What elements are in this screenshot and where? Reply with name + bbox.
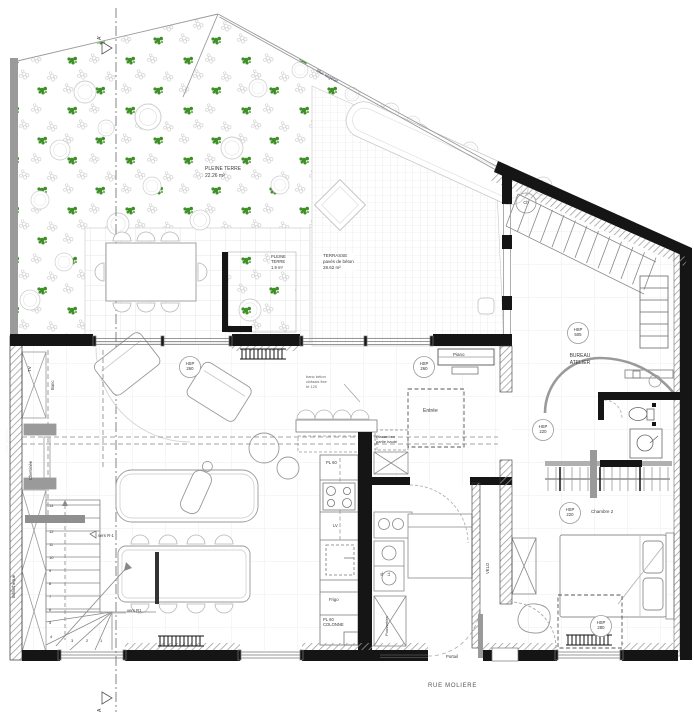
label-pl60: PL 60 bbox=[326, 460, 337, 465]
hsp-badge-chambre: HSP220 bbox=[555, 508, 585, 518]
label-placard: Placard enpartie haute bbox=[376, 434, 397, 444]
hsp-badge-hall: HSP260 bbox=[409, 362, 439, 372]
label-vers-r1: vers R1 bbox=[127, 608, 141, 613]
label-mur-vegetal-left: Mur végétal bbox=[4, 428, 10, 452]
label-ch: Ch bbox=[511, 200, 541, 205]
hsp-badge-bureau: HSP505 bbox=[563, 328, 593, 338]
section-arrow-bottom bbox=[102, 692, 112, 704]
section-marker-top-label: A' bbox=[97, 36, 104, 40]
toilet bbox=[629, 408, 647, 421]
piano-bench bbox=[452, 367, 478, 374]
label-entree: Entrée bbox=[423, 408, 438, 415]
label-seche-linge: SL bbox=[380, 572, 385, 576]
label-cheminee: Cheminée bbox=[28, 461, 33, 480]
label-vers-r-moins-1: vers R-1 bbox=[98, 533, 114, 538]
label-bureau-atelier: BUREAUATELIER bbox=[556, 353, 604, 366]
label-lv: LV bbox=[333, 523, 338, 528]
label-velo: VELO bbox=[485, 563, 490, 574]
label-terrasse: TERRASSEpavés de béton28.62 m² bbox=[322, 253, 355, 271]
label-pl60-colonne: PL 60COLONNE bbox=[323, 617, 344, 628]
hsp-badge-sejour: HSP260 bbox=[175, 362, 205, 372]
shower bbox=[630, 429, 662, 458]
floor-plan: PLEINE TERRE22.26 m² TERRASSEpavés de bé… bbox=[0, 0, 694, 720]
stair-handrail bbox=[155, 552, 159, 604]
label-chambre2: Chambre 2 bbox=[591, 509, 613, 515]
section-marker-bottom-label: A bbox=[97, 709, 104, 712]
green-wall-strip bbox=[10, 58, 18, 342]
label-pleine-terre-small: PLEINETERRE1.9 m² bbox=[270, 254, 287, 270]
label-pleine-terre-large: PLEINE TERRE22.26 m² bbox=[205, 166, 241, 179]
hsp-badge-passage: HSP220 bbox=[528, 425, 558, 435]
label-banc: Banc bbox=[50, 380, 55, 390]
label-piano: Piano bbox=[453, 352, 465, 358]
hsp-badge-lit: HSP280 bbox=[586, 621, 616, 631]
label-lave-linge: LL bbox=[387, 572, 392, 576]
label-poussettes: Poussettes bbox=[384, 616, 389, 636]
concrete-bench bbox=[296, 420, 377, 432]
label-bibliotheque: Bibliothèque bbox=[11, 575, 16, 598]
label-frigo: Frigo bbox=[329, 597, 339, 602]
label-banc-beton: banc bétonchâssis fixeht 120 bbox=[306, 374, 327, 390]
label-tv: TV bbox=[27, 366, 33, 372]
street-name: RUE MOLIERE bbox=[428, 683, 477, 691]
pillow bbox=[643, 578, 663, 610]
sink bbox=[326, 545, 354, 575]
label-portail: Portail bbox=[446, 654, 458, 659]
